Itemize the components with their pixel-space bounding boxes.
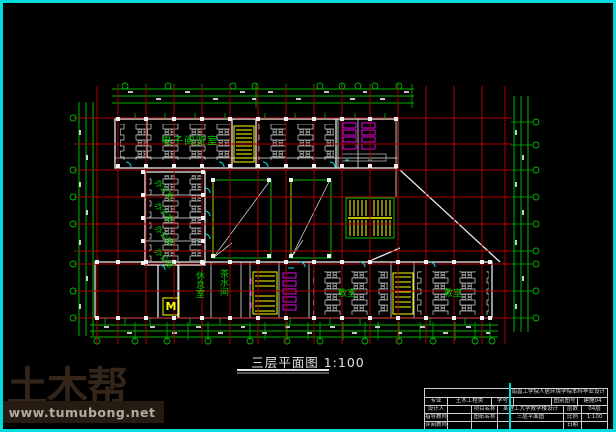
watermark-url: www.tumubong.net: [9, 405, 156, 420]
doc-no-value: 建施04: [577, 398, 607, 405]
room-label-rest-room: 休息室: [193, 271, 206, 315]
title-block-row: 专业 土木工程类 学号 图别图号 建施04: [425, 397, 607, 405]
designer-label: 设计人: [425, 406, 447, 413]
designer-value: [447, 406, 471, 413]
empty-cell: [471, 422, 497, 429]
room-label-tea-room: 茶水间: [217, 269, 230, 313]
student-no-value: [513, 398, 551, 405]
classroom-desks: [120, 124, 489, 315]
sheet-fold-line: [509, 383, 511, 431]
date-value: [581, 422, 607, 429]
entrance-door-mark: M: [164, 300, 178, 313]
project-label: 项目名称: [471, 406, 497, 413]
date-label: 日期: [563, 422, 581, 429]
cad-drawing-sheet: 电子阅览室 办公室 办公室 办公室 办公室 休息室 茶水间 教室 教室 M 三层…: [0, 0, 616, 432]
stair-bottom-right: [393, 273, 413, 314]
room-label-classroom-left: 教室: [338, 286, 356, 299]
empty-cell: [497, 422, 563, 429]
atrium-voids: [213, 180, 331, 258]
plan-title-name: 三层平面图: [251, 355, 319, 370]
plan-title-scale: 1:100: [324, 355, 365, 370]
scale-value: 1:100: [581, 414, 607, 421]
room-label-reading-room: 电子阅览室: [161, 133, 219, 148]
floors-label: 层数: [563, 406, 581, 413]
title-block: 南昌工学院人居环境学院本科毕业设计 专业 土木工程类 学号 图别图号 建施04 …: [424, 388, 608, 430]
title-block-header: 南昌工学院人居环境学院本科毕业设计: [425, 389, 607, 397]
reviewer-label: 评阅教师: [425, 422, 447, 429]
sheet-name-value: 三层平面图: [497, 414, 563, 421]
room-label-classroom-right: 教室: [444, 286, 462, 299]
advisor-value: [447, 414, 471, 421]
sheet-name-label: 图纸名称: [471, 414, 497, 421]
stair-bottom-left: [251, 272, 277, 314]
plan-title: 三层平面图 1:100: [238, 352, 378, 371]
scale-label: 比例: [563, 414, 581, 421]
watermark-url-bar: www.tumubong.net: [0, 401, 164, 423]
advisor-label: 指导教师: [425, 414, 447, 421]
doc-no-label: 图别图号: [551, 398, 577, 405]
reviewer-value: [447, 422, 471, 429]
major-value: 土木工程类: [447, 398, 491, 405]
major-label: 专业: [425, 398, 447, 405]
project-value: 某理工大学教学楼设计: [497, 406, 563, 413]
floors-value: 04层: [581, 406, 607, 413]
title-block-row: 设计人 项目名称 某理工大学教学楼设计 层数 04层: [425, 405, 607, 413]
title-block-row: 指导教师 图纸名称 三层平面图 比例 1:100: [425, 413, 607, 421]
title-block-row: 评阅教师 日期: [425, 421, 607, 429]
